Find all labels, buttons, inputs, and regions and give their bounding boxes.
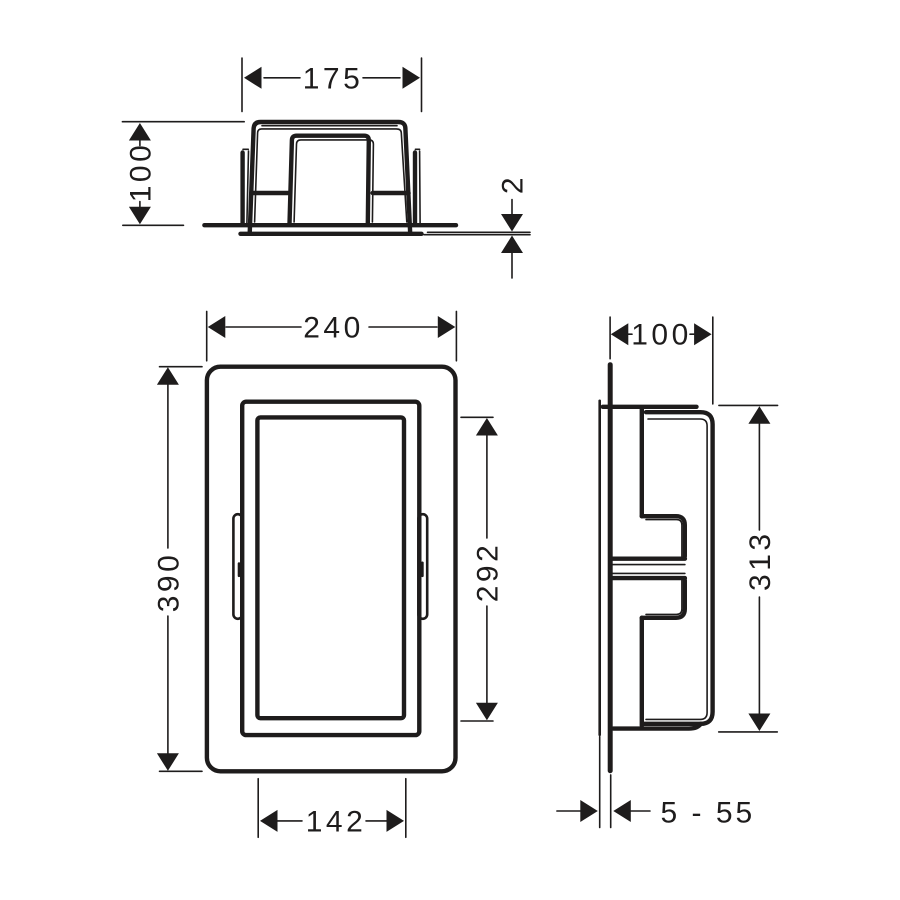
svg-text:390: 390	[152, 552, 185, 613]
svg-text:142: 142	[306, 805, 367, 838]
svg-text:175: 175	[303, 62, 364, 95]
svg-text:100: 100	[631, 319, 692, 352]
svg-text:292: 292	[471, 542, 504, 603]
svg-text:5 - 55: 5 - 55	[661, 797, 756, 830]
svg-text:240: 240	[303, 312, 364, 345]
svg-text:2: 2	[497, 174, 530, 194]
svg-text:100: 100	[124, 142, 157, 203]
svg-text:313: 313	[744, 530, 777, 591]
